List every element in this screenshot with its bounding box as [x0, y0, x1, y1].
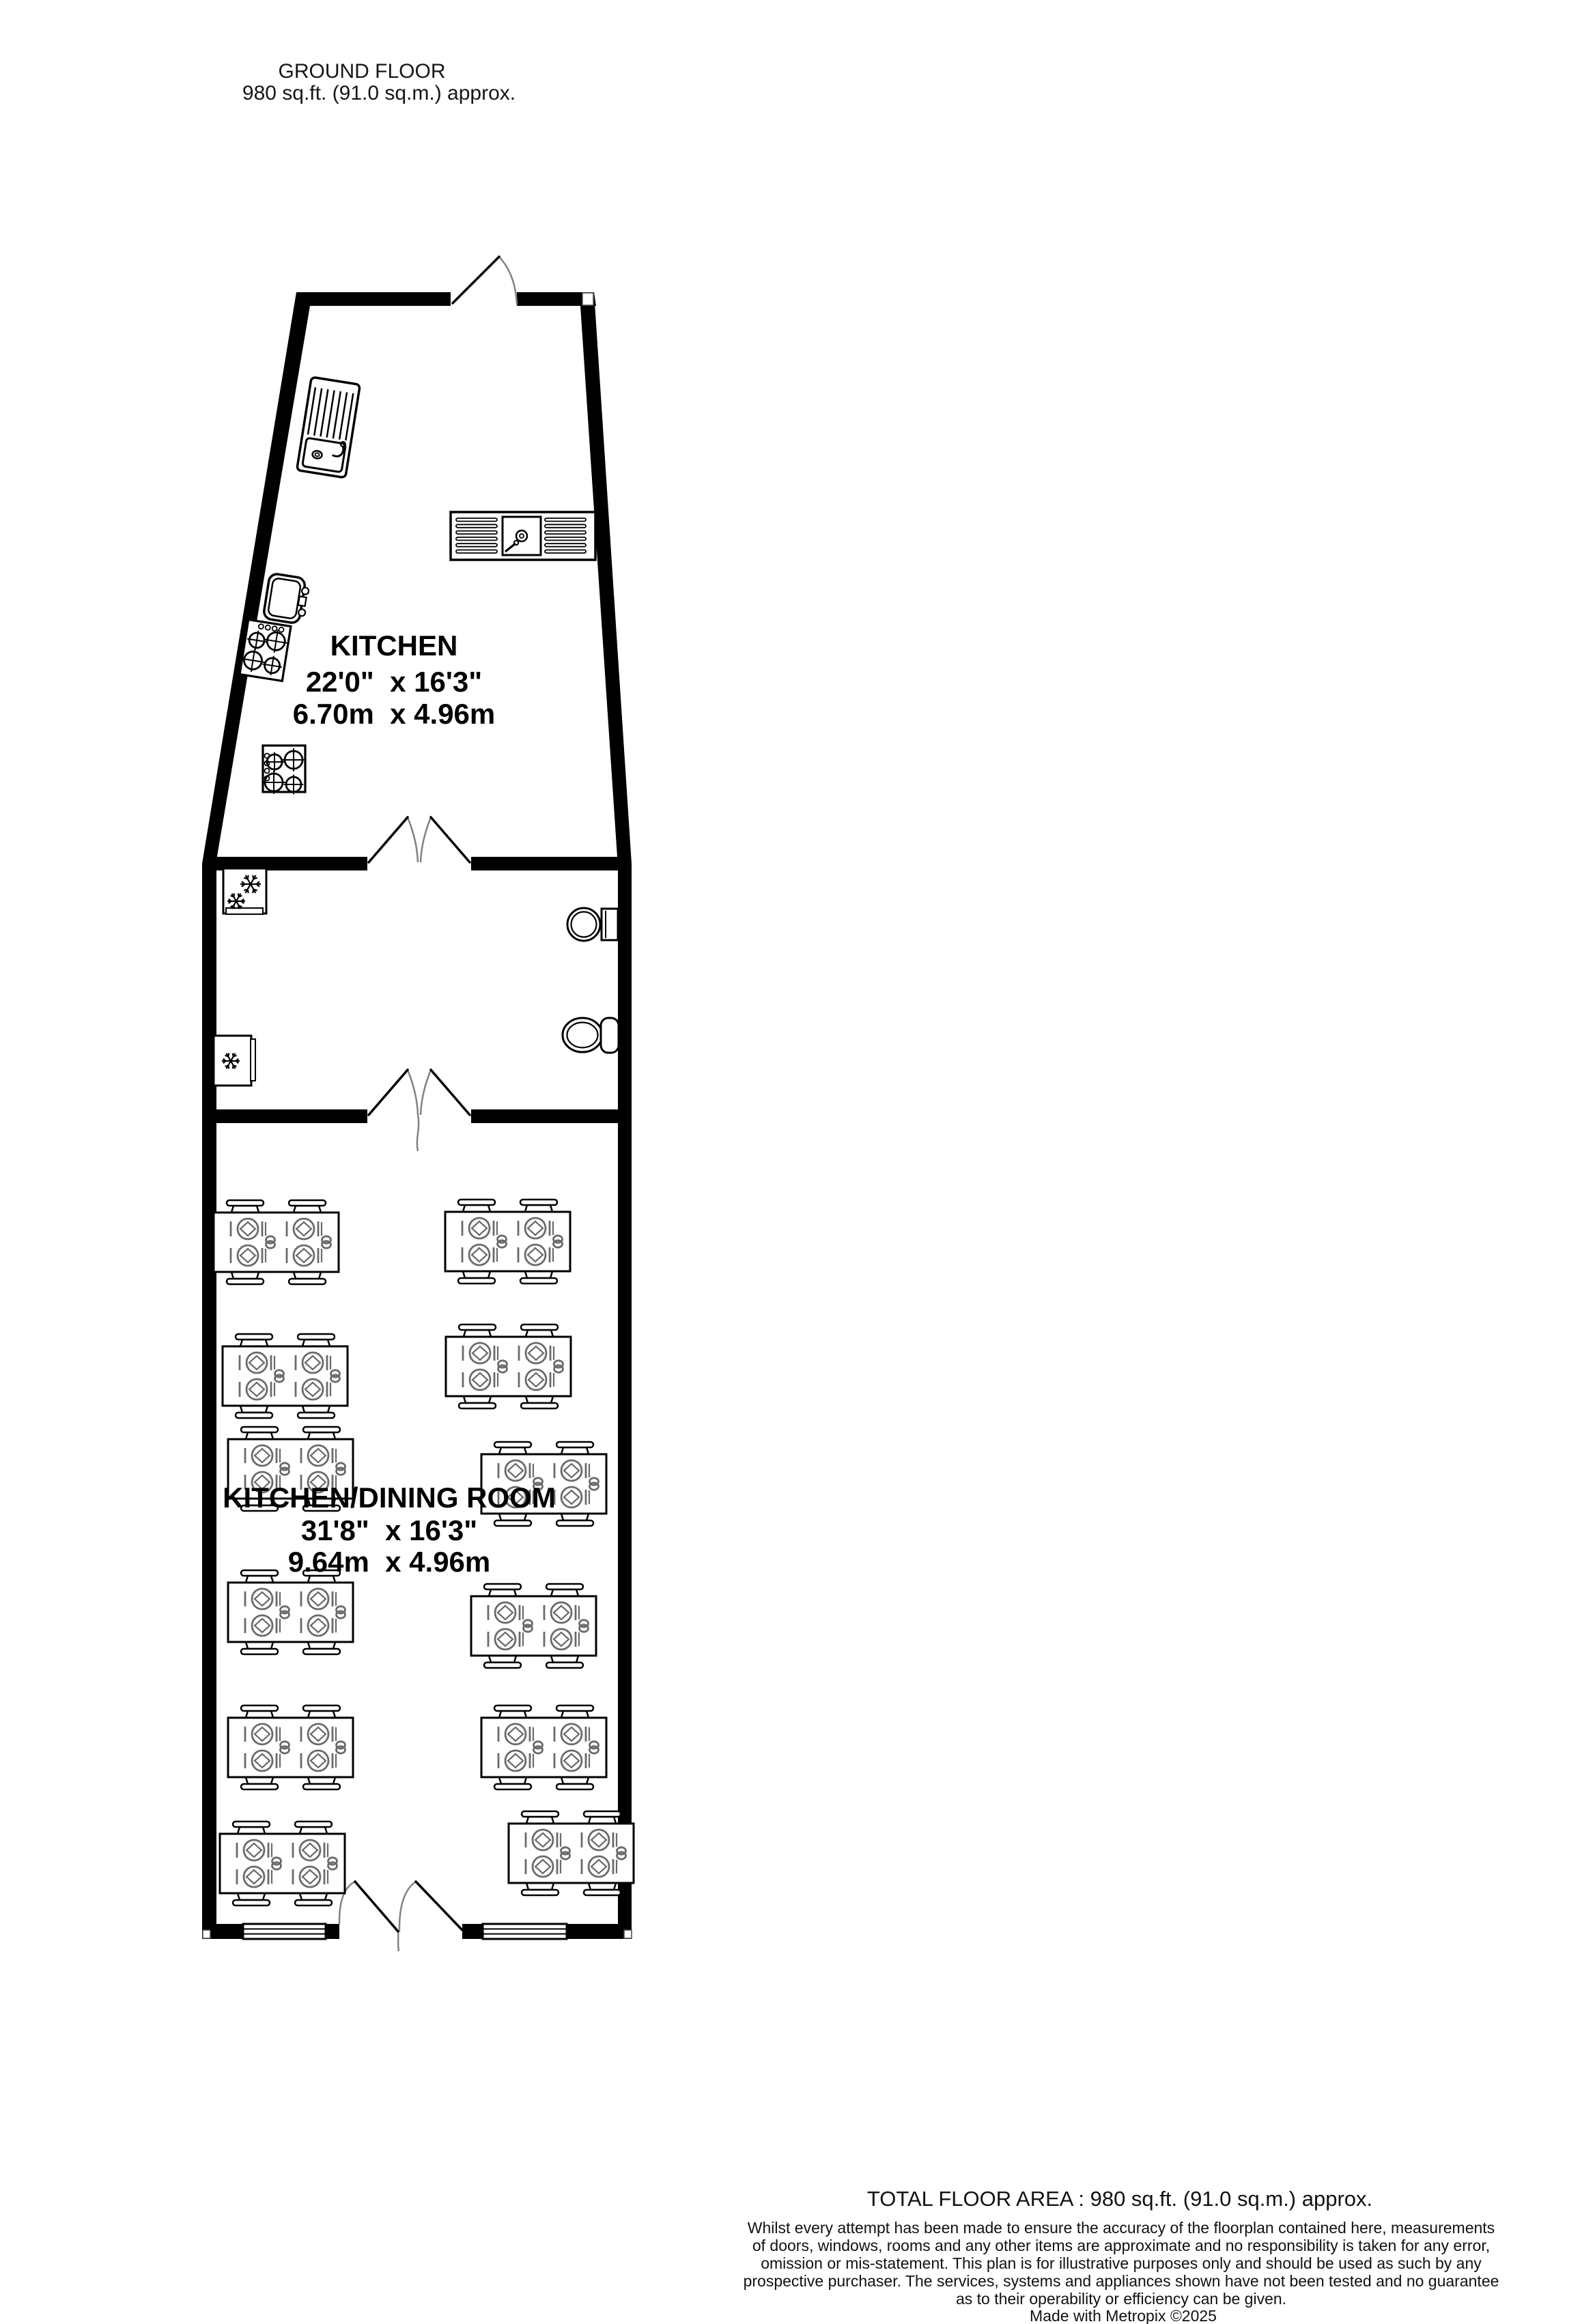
dining-table [445, 1200, 570, 1284]
dining-table [214, 1200, 339, 1284]
kitchen-label: KITCHEN [330, 629, 458, 662]
hob-icon [262, 746, 305, 794]
sink-unit-icon [451, 512, 595, 560]
metropix-credit: Made with Metropix ©2025 [1030, 2307, 1217, 2324]
kitchen-dims-metric: 6.70m x 4.96m [293, 698, 496, 730]
disclaimer-line: omission or mis-statement. This plan is … [761, 2254, 1482, 2272]
disclaimer-line: prospective purchaser. The services, sys… [744, 2272, 1499, 2290]
hob-icon [239, 619, 291, 681]
floorplan-svg: GROUND FLOOR 980 sq.ft. (91.0 sq.m.) app… [0, 0, 1595, 2324]
dining-table [481, 1705, 606, 1789]
dining-table [228, 1705, 353, 1789]
dining-table [223, 1334, 348, 1418]
dining-room-dims-metric: 9.64m x 4.96m [288, 1546, 491, 1578]
kitchen-dims-imperial: 22'0" x 16'3" [306, 666, 482, 698]
dining-room-label: KITCHEN/DINING ROOM [223, 1482, 556, 1514]
toilet-icon [563, 1018, 619, 1053]
dining-room-dims-imperial: 31'8" x 16'3" [301, 1514, 477, 1546]
dining-table [509, 1811, 634, 1895]
dining-table [228, 1570, 353, 1654]
fridge-icon [214, 1036, 255, 1086]
dining-table [471, 1584, 596, 1668]
disclaimer-line: as to their operability or efficiency ca… [956, 2290, 1286, 2308]
disclaimer-line: Whilst every attempt has been made to en… [748, 2219, 1495, 2237]
dining-table [220, 1822, 345, 1905]
total-floor-area: TOTAL FLOOR AREA : 980 sq.ft. (91.0 sq.m… [867, 2187, 1372, 2211]
freezer-icon [223, 868, 266, 914]
toilet-icon [567, 908, 618, 941]
floor-title: GROUND FLOOR [278, 60, 445, 83]
window [483, 1924, 567, 1939]
floor-area-subtitle: 980 sq.ft. (91.0 sq.m.) approx. [242, 82, 516, 104]
window [243, 1924, 326, 1939]
plan-background [0, 0, 1595, 2324]
disclaimer-line: of doors, windows, rooms and any other i… [752, 2237, 1490, 2254]
dining-table [446, 1324, 571, 1408]
